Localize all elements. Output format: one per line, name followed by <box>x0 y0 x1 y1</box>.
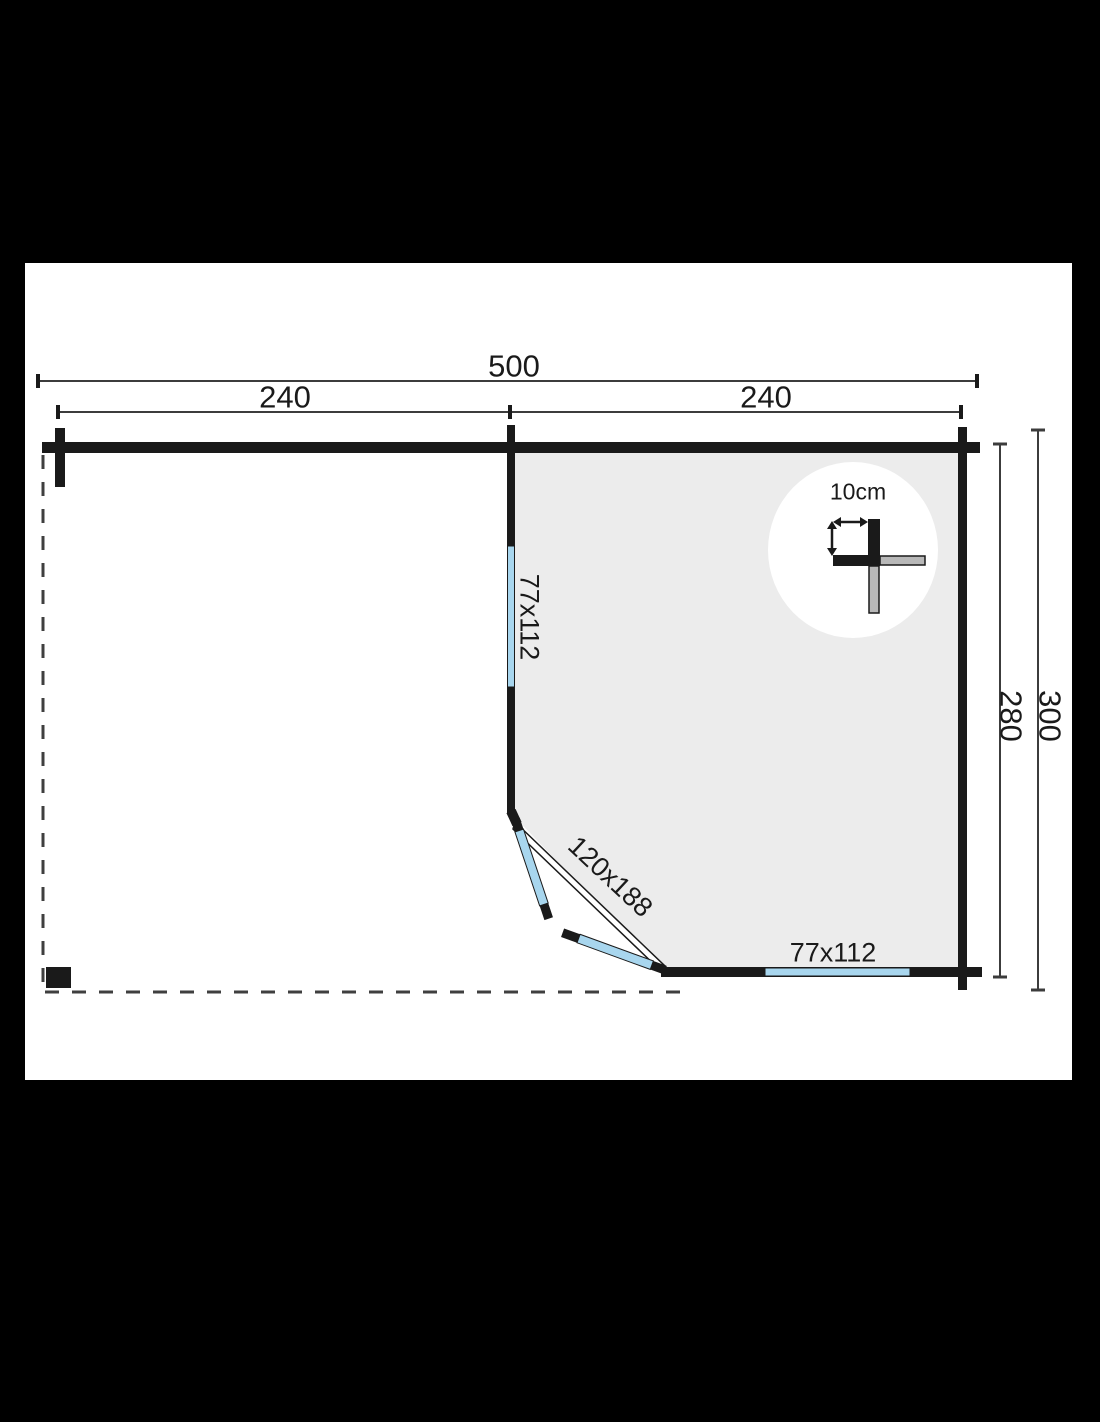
middle-wall-upper <box>507 425 515 546</box>
detail-log-right <box>880 556 925 565</box>
post-left <box>55 428 65 487</box>
wall-thickness-label: 10cm <box>830 481 886 504</box>
detail-wall-horizontal <box>833 555 880 566</box>
detail-log-down <box>869 566 879 613</box>
dim-label-right-span: 240 <box>740 382 792 413</box>
floor-plan-svg <box>25 263 1072 1080</box>
door-leaf-cap <box>561 928 580 942</box>
canopy-corner-post <box>46 967 71 988</box>
dim-label-left-span: 240 <box>259 382 311 413</box>
side-window-glass <box>508 546 515 687</box>
door-leaf-cap <box>540 903 553 920</box>
side-window-label: 77x112 <box>516 574 543 661</box>
dim-label-total-width: 500 <box>488 351 540 382</box>
dim-label-total-depth: 300 <box>1035 690 1066 742</box>
dim-label-inner-depth: 280 <box>996 690 1027 742</box>
dimension-spans <box>57 405 962 419</box>
floor-plan-image: 500 240 240 280 300 77x112 120x188 77x11… <box>0 0 1100 1422</box>
drawing-area: 500 240 240 280 300 77x112 120x188 77x11… <box>25 263 1072 1080</box>
front-window-label: 77x112 <box>790 940 877 967</box>
middle-wall-lower <box>507 687 515 813</box>
right-wall <box>958 427 967 990</box>
front-window-glass <box>765 968 910 976</box>
